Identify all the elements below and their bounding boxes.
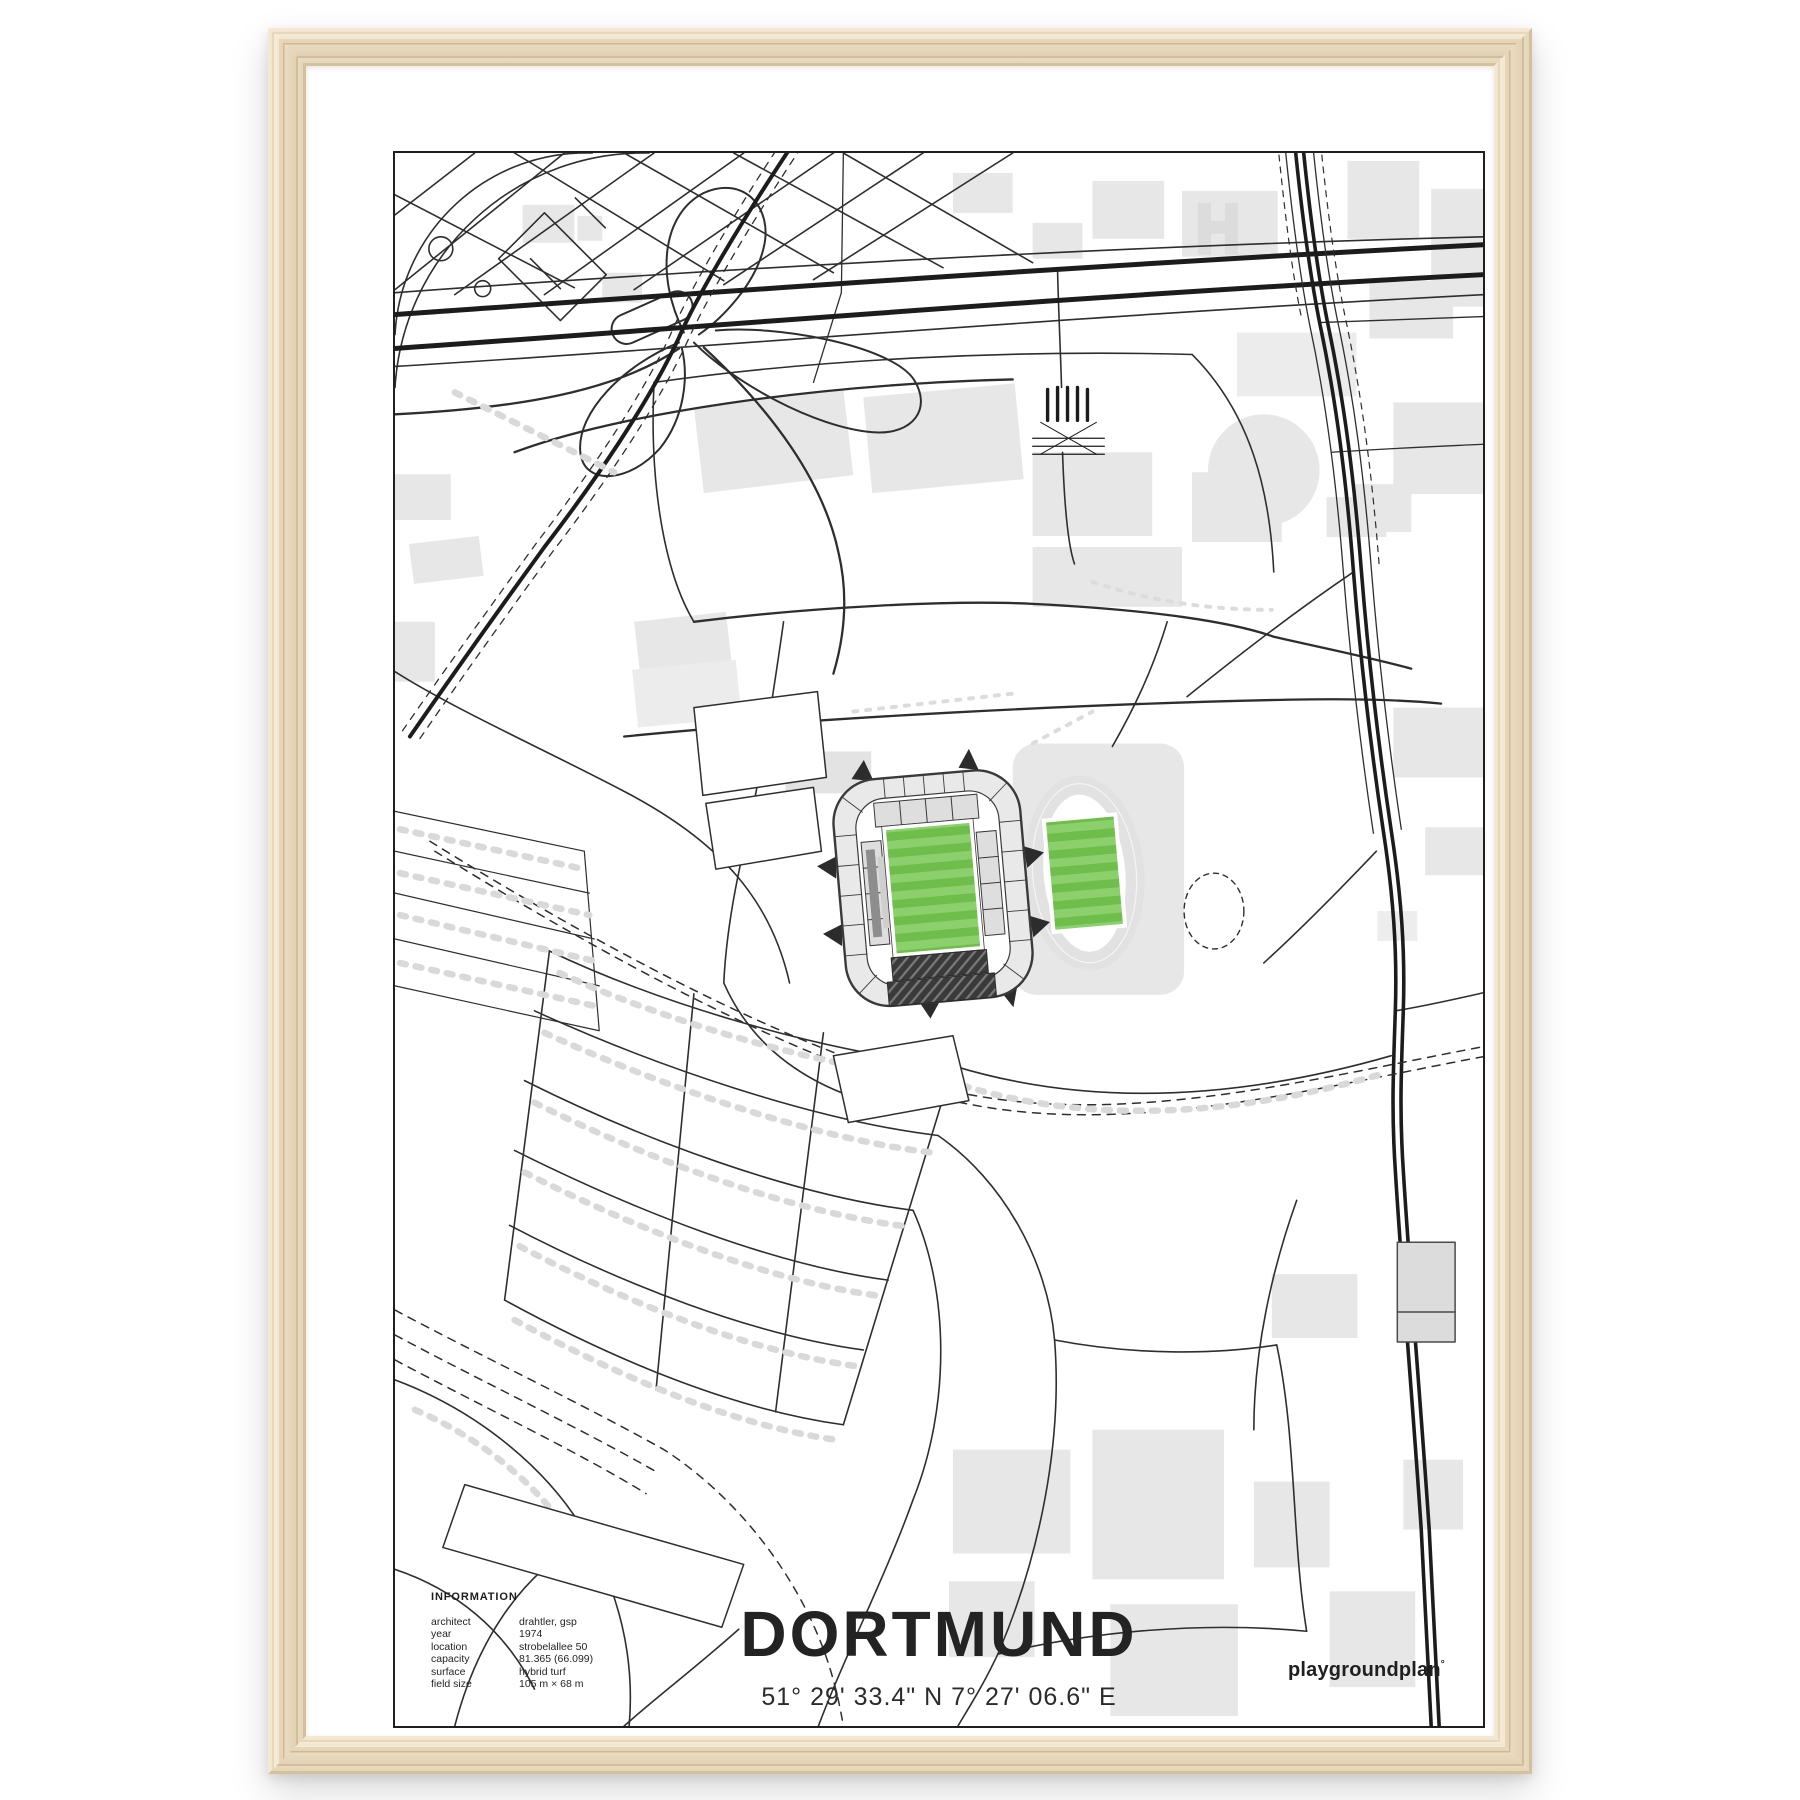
stadium-pitch [886,823,980,954]
brand-text: playgroundplan [1288,1659,1441,1681]
station-platforms-icon [1033,387,1105,454]
map-svg [395,153,1483,1726]
depot-building [1397,1242,1455,1342]
brand-degree-mark: ° [1441,1659,1445,1670]
poster-print: INFORMATION architectdrahtler, gsp year1… [393,151,1485,1728]
page: { "poster": { "title": "DORTMUND", "coor… [0,0,1800,1800]
matte: INFORMATION architectdrahtler, gsp year1… [306,66,1494,1736]
frame-wood-left [268,28,306,1774]
dashed-oval [1184,873,1244,949]
title-block: DORTMUND 51° 29' 33.4" N 7° 27' 06.6" E [395,1601,1483,1712]
picture-frame: INFORMATION architectdrahtler, gsp year1… [268,28,1532,1774]
poster-coordinates: 51° 29' 33.4" N 7° 27' 06.6" E [395,1683,1483,1712]
frame-wood-right [1494,28,1532,1774]
south-stand-yellow-wall [885,949,996,1006]
brand-logo: playgroundplan° [1288,1659,1445,1682]
frame-wood-top [268,28,1532,66]
frame-wood-bottom [268,1736,1532,1774]
